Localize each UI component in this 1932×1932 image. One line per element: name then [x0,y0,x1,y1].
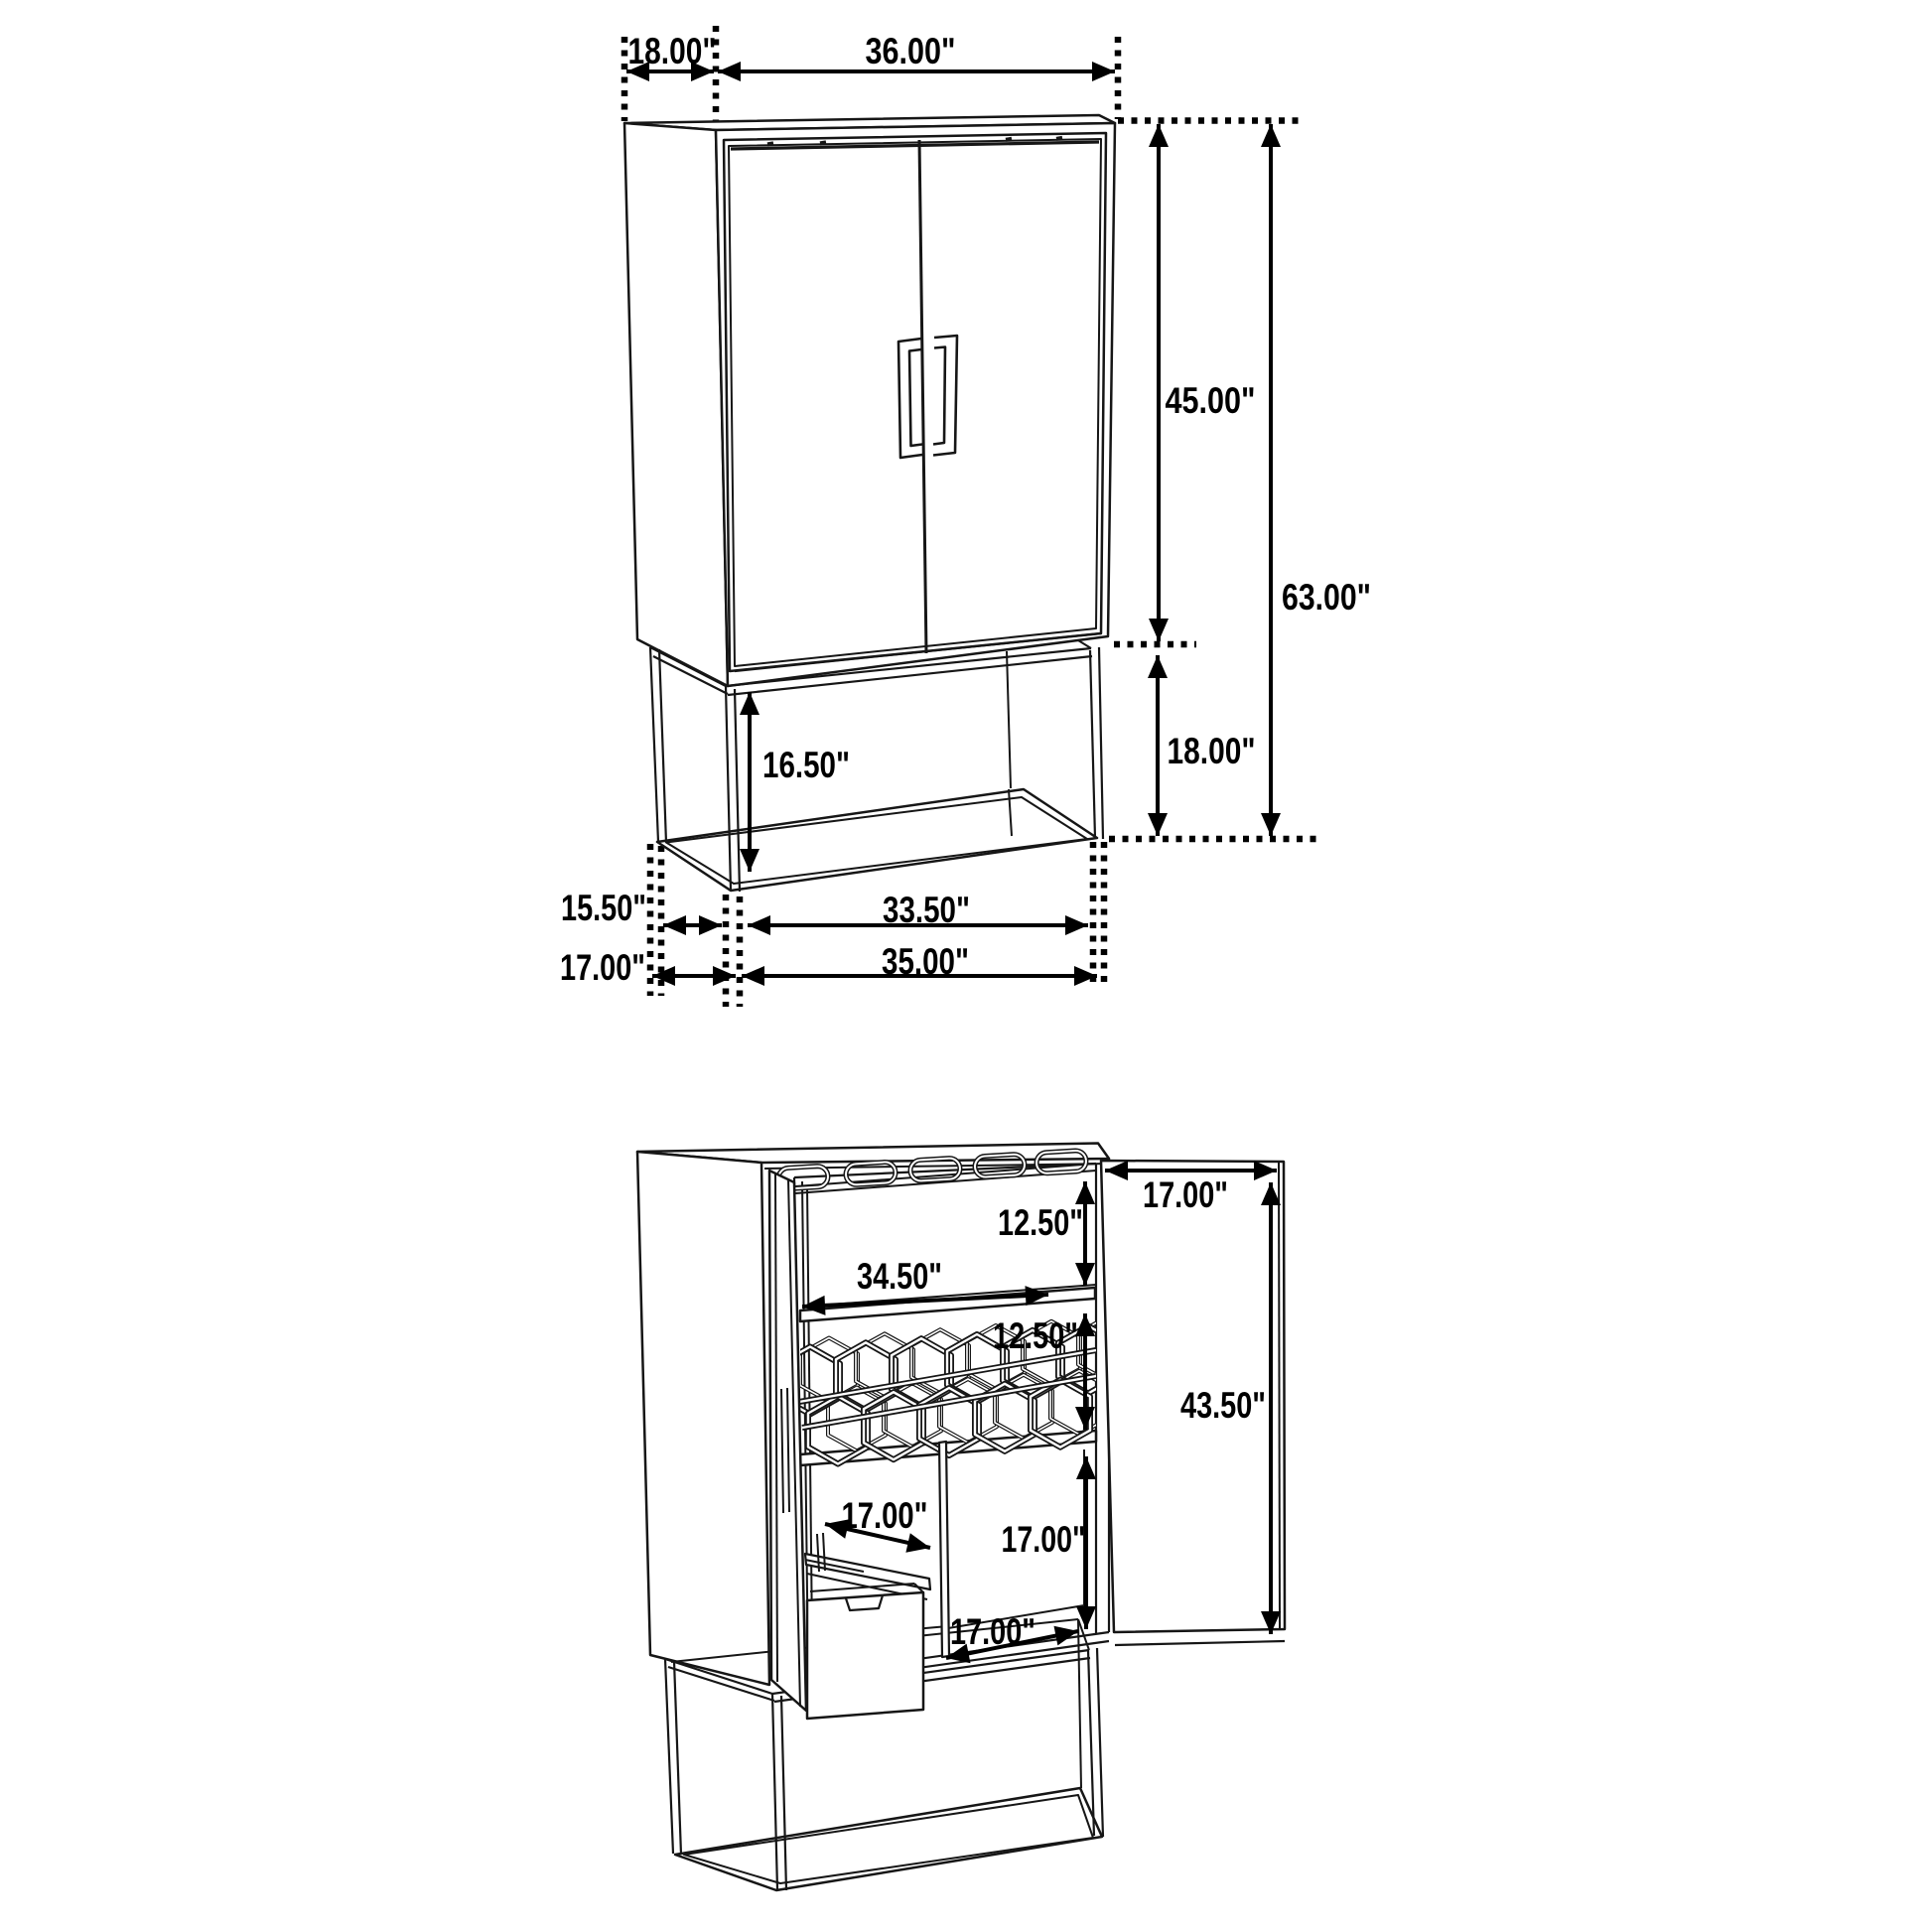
svg-text:18.00": 18.00" [628,31,717,71]
svg-text:17.00": 17.00" [950,1611,1035,1652]
svg-text:45.00": 45.00" [1166,380,1256,421]
svg-text:15.50": 15.50" [561,888,646,928]
svg-text:16.50": 16.50" [762,745,850,785]
svg-text:12.50": 12.50" [998,1202,1083,1243]
svg-text:43.50": 43.50" [1180,1385,1266,1426]
svg-text:33.50": 33.50" [883,890,970,930]
svg-text:17.00": 17.00" [1143,1174,1228,1215]
svg-text:12.50": 12.50" [993,1315,1078,1356]
svg-text:35.00": 35.00" [882,941,969,982]
svg-text:34.50": 34.50" [857,1256,942,1297]
svg-text:63.00": 63.00" [1282,577,1371,618]
svg-text:17.00": 17.00" [1002,1519,1086,1560]
svg-text:17.00": 17.00" [560,947,645,988]
svg-text:18.00": 18.00" [1168,731,1256,771]
svg-text:17.00": 17.00" [842,1495,928,1536]
svg-text:36.00": 36.00" [866,31,956,71]
